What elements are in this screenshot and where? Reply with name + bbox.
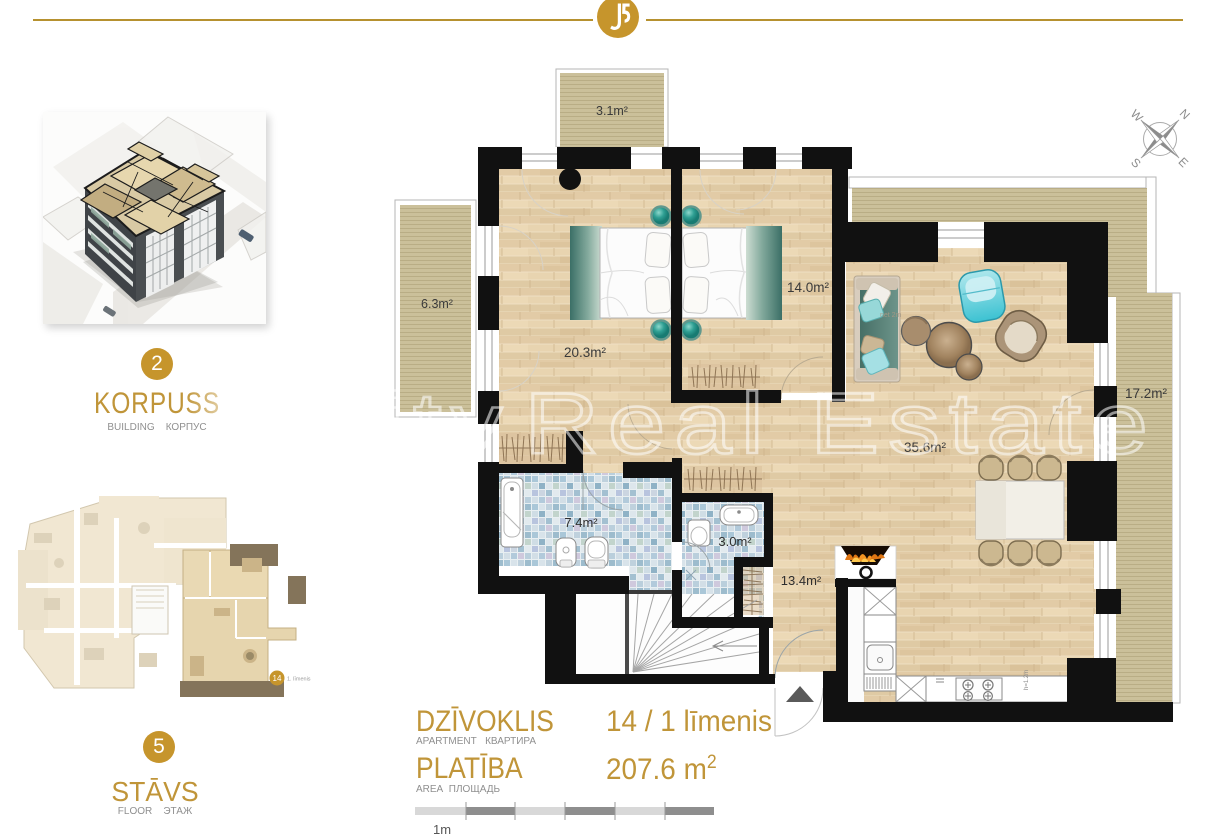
svg-text:3.1m²: 3.1m² <box>596 104 628 118</box>
svg-text:N: N <box>1177 106 1193 122</box>
svg-text:h=1.2m: h=1.2m <box>1024 670 1030 690</box>
svg-text:13.4m²: 13.4m² <box>781 573 822 588</box>
svg-text:3.0m²: 3.0m² <box>718 534 752 549</box>
svg-text:S: S <box>1128 155 1144 171</box>
svg-text:Real Estate: Real Estate <box>524 376 1156 472</box>
svg-text:1m: 1m <box>433 822 451 837</box>
svg-text:City: City <box>298 376 512 472</box>
svg-text:6.3m²: 6.3m² <box>421 297 453 311</box>
svg-text:net 2m: net 2m <box>880 312 902 319</box>
svg-text:7.4m²: 7.4m² <box>564 515 598 530</box>
svg-text:14.0m²: 14.0m² <box>787 280 830 295</box>
svg-text:20.3m²: 20.3m² <box>564 345 607 360</box>
